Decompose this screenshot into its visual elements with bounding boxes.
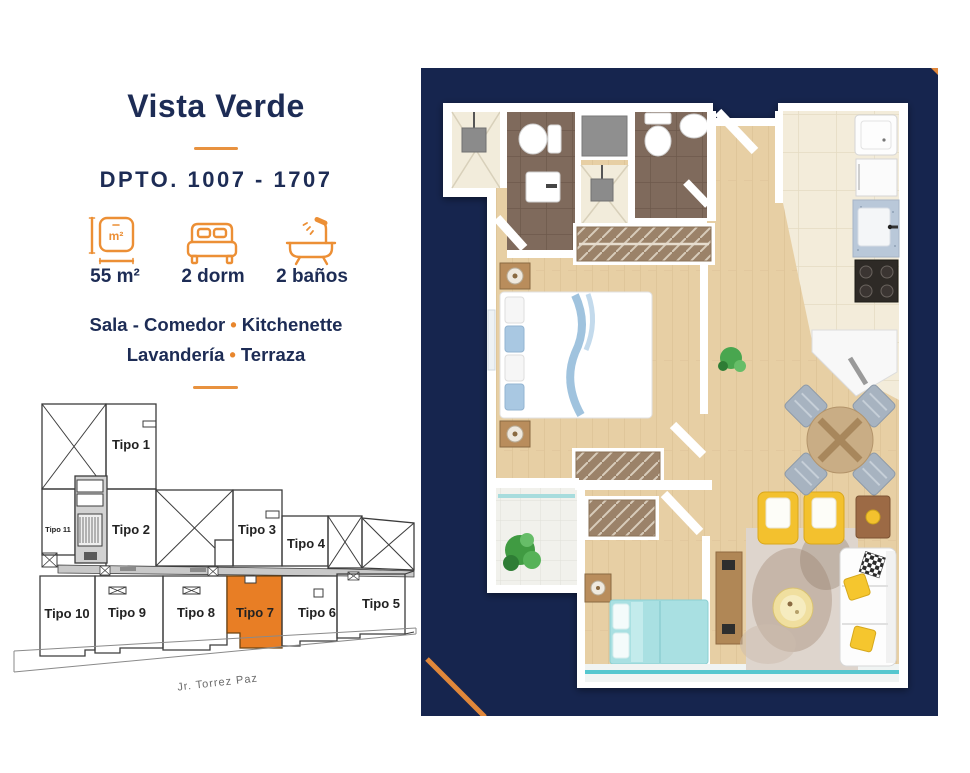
street-boundary bbox=[14, 628, 416, 672]
bathroom-sink bbox=[680, 114, 708, 138]
coffee-table bbox=[773, 588, 813, 628]
unit-label-tipo-1: Tipo 1 bbox=[112, 437, 150, 452]
street-name-label: Jr. Torrez Paz bbox=[177, 672, 259, 693]
fridge bbox=[856, 159, 897, 196]
unit-label-tipo-9: Tipo 9 bbox=[108, 605, 146, 620]
amenities-line-2: Lavandería•Terraza bbox=[30, 344, 402, 366]
bed-teal bbox=[610, 600, 708, 664]
unit-label-tipo-7: Tipo 7 bbox=[236, 605, 274, 620]
room-shower-2 bbox=[581, 165, 628, 225]
unit-label-tipo-4: Tipo 4 bbox=[287, 536, 326, 551]
side-table bbox=[856, 496, 890, 538]
bullet-separator: • bbox=[225, 314, 241, 335]
apartment-number: DPTO. 1007 - 1707 bbox=[40, 167, 392, 193]
corner-accent-triangle bbox=[931, 68, 938, 75]
unit-label-tipo-8: Tipo 8 bbox=[177, 605, 215, 620]
room-bathroom-2 bbox=[635, 112, 708, 224]
laundry-tub bbox=[855, 115, 897, 155]
flyer-page: Vista Verde DPTO. 1007 - 1707 m² bbox=[0, 0, 970, 773]
tv-console bbox=[716, 552, 742, 644]
site-plan-void-area bbox=[328, 516, 414, 570]
unit-label-tipo-3: Tipo 3 bbox=[238, 522, 276, 537]
nightstand bbox=[500, 421, 530, 447]
pillow-yellow bbox=[850, 626, 877, 653]
area-icon-text: m² bbox=[109, 229, 124, 243]
site-plan: Tipo 1 Tipo 2 Tipo 11 Tipo 3 Tipo 4 Tipo… bbox=[0, 395, 440, 705]
feature-area-value: 55 m² bbox=[60, 266, 170, 288]
kitchen-sink-counter bbox=[853, 200, 899, 257]
unit-label-tipo-6: Tipo 6 bbox=[298, 605, 336, 620]
title-divider bbox=[194, 147, 238, 150]
floor-plan-render bbox=[421, 68, 938, 716]
site-plan-void-area bbox=[156, 490, 233, 566]
closet-master-wardrobe bbox=[573, 223, 715, 265]
toilet bbox=[519, 124, 547, 154]
stove bbox=[855, 260, 898, 302]
feature-bathrooms-value: 2 baños bbox=[257, 266, 367, 288]
site-plan-unit-tipo-11 bbox=[42, 489, 75, 555]
unit-label-tipo-10: Tipo 10 bbox=[44, 606, 89, 621]
bullet-separator: • bbox=[224, 344, 240, 365]
closet-mirror bbox=[578, 112, 631, 160]
armchair-yellow bbox=[804, 492, 844, 544]
bed-icon bbox=[183, 216, 241, 268]
window bbox=[488, 310, 495, 370]
toilet bbox=[645, 126, 671, 156]
unit-label-tipo-2: Tipo 2 bbox=[112, 522, 150, 537]
corner-accent-line bbox=[427, 659, 485, 716]
armchair-yellow bbox=[758, 492, 798, 544]
nightstand bbox=[500, 263, 530, 289]
unit-label-tipo-11: Tipo 11 bbox=[45, 525, 71, 534]
room-laundry bbox=[487, 478, 579, 585]
feature-bedrooms-value: 2 dorm bbox=[158, 266, 268, 288]
bath-icon bbox=[280, 214, 342, 268]
closet-bedroom-2 bbox=[585, 496, 659, 540]
shower-drain bbox=[462, 128, 486, 152]
unit-label-tipo-5: Tipo 5 bbox=[362, 596, 400, 611]
section-divider bbox=[193, 386, 238, 389]
room-bathroom-master bbox=[497, 112, 575, 258]
sofa bbox=[840, 548, 896, 666]
site-plan-elevator-core bbox=[75, 476, 107, 563]
area-icon: m² bbox=[86, 213, 140, 269]
nightstand bbox=[585, 574, 611, 602]
amenities-line-1: Sala - Comedor•Kitchenette bbox=[30, 314, 402, 336]
master-bed bbox=[500, 292, 652, 418]
room-shower-master bbox=[452, 112, 500, 188]
page-title: Vista Verde bbox=[40, 88, 392, 125]
